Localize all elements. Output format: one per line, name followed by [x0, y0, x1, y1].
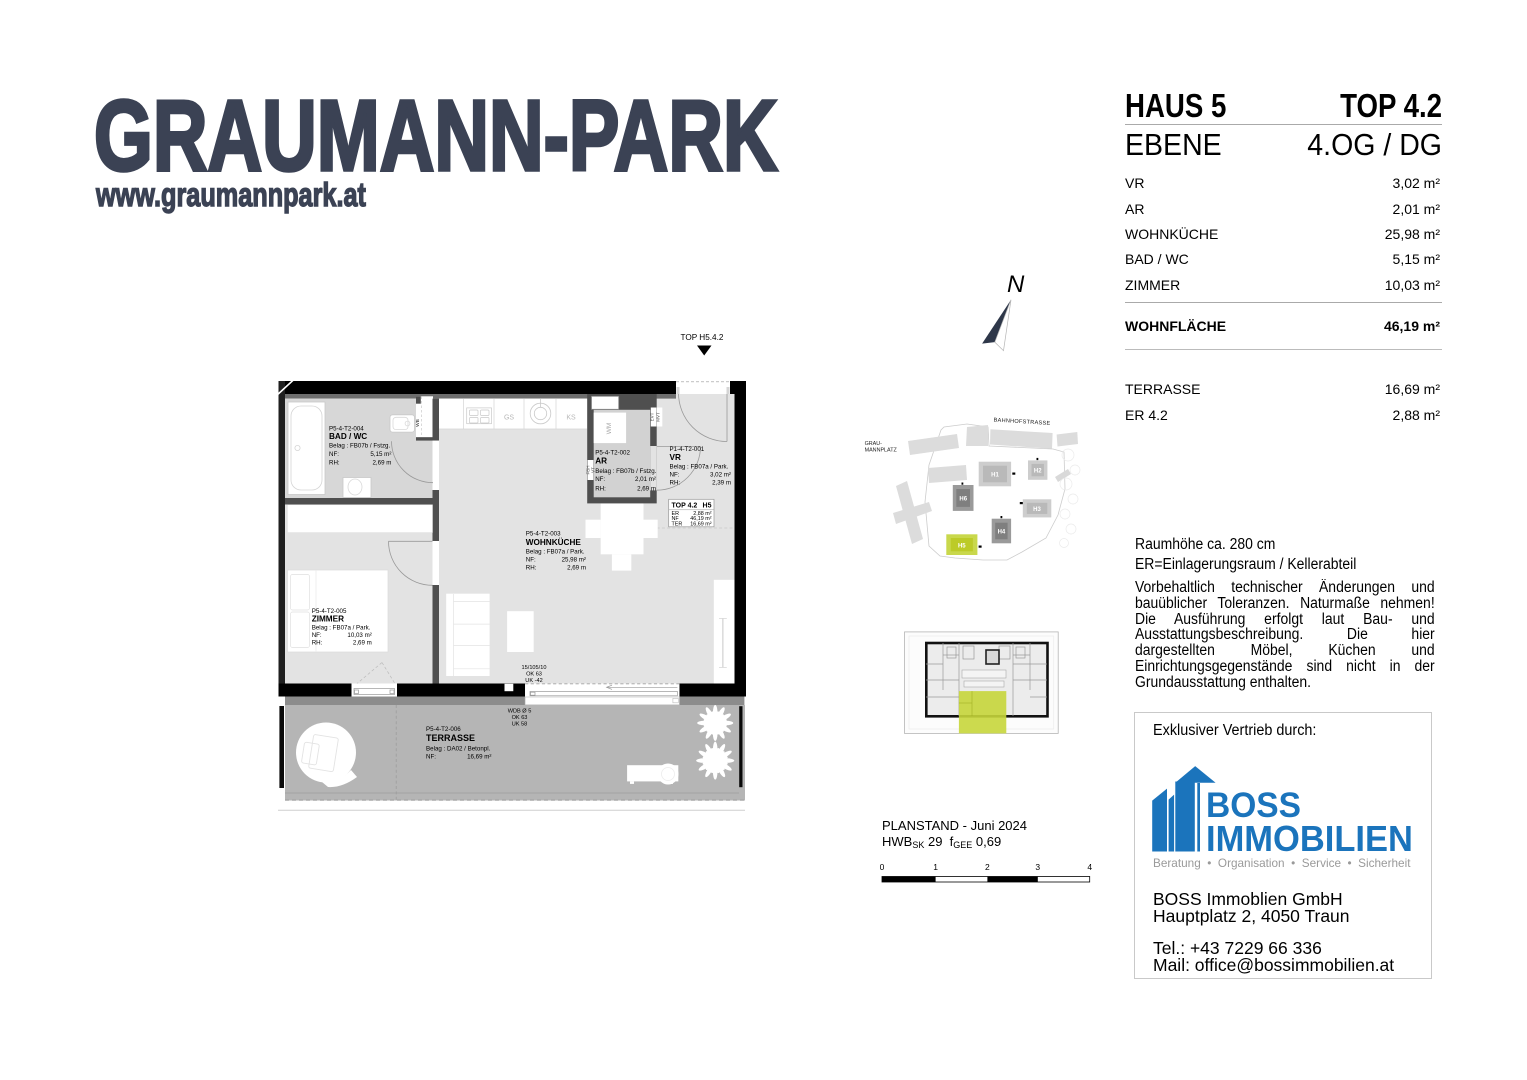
svg-text:OK 63: OK 63 — [512, 715, 528, 721]
svg-text:RH:: RH: — [329, 459, 340, 466]
svg-text:2,69 m: 2,69 m — [372, 459, 391, 466]
svg-text:NF:: NF: — [526, 557, 536, 564]
svg-text:15/105/10: 15/105/10 — [522, 665, 547, 671]
svg-text:1: 1 — [933, 862, 938, 872]
svg-text:TER: TER — [672, 522, 683, 528]
svg-text:Belag : FB07b / Fstzg.: Belag : FB07b / Fstzg. — [329, 442, 390, 449]
svg-text:Belag : FB07a / Park.: Belag : FB07a / Park. — [526, 549, 585, 556]
svg-text:ZIMMER: ZIMMER — [312, 614, 344, 623]
svg-text:16,69 m²: 16,69 m² — [690, 522, 711, 528]
svg-text:H5: H5 — [703, 502, 712, 509]
svg-text:P5-4-T2-003: P5-4-T2-003 — [526, 531, 561, 538]
svg-text:H4: H4 — [998, 530, 1006, 536]
svg-text:WM: WM — [606, 423, 613, 435]
svg-text:H1: H1 — [991, 472, 999, 478]
svg-text:BAHNHOFSTRASSE: BAHNHOFSTRASSE — [993, 418, 1050, 427]
svg-text:Belag : FB07b / Fstzg.: Belag : FB07b / Fstzg. — [595, 468, 656, 475]
svg-text:2,39 m: 2,39 m — [712, 479, 731, 486]
svg-text:P5-4-T2-002: P5-4-T2-002 — [595, 449, 630, 456]
svg-text:2,01 m²: 2,01 m² — [635, 476, 656, 483]
svg-text:UK 58: UK 58 — [512, 722, 528, 728]
svg-text:Belag : DA02 / Betonpl.: Belag : DA02 / Betonpl. — [426, 746, 491, 753]
svg-text:BAD / WC: BAD / WC — [329, 432, 367, 441]
svg-text:RH:: RH: — [526, 565, 537, 572]
svg-text:Belag : FB07a / Park.: Belag : FB07a / Park. — [312, 625, 371, 632]
svg-text:H5: H5 — [958, 544, 966, 550]
svg-text:TERRASSE: TERRASSE — [426, 733, 475, 743]
svg-text:WOHNKÜCHE: WOHNKÜCHE — [526, 537, 582, 547]
svg-text:UK -42: UK -42 — [525, 678, 542, 684]
svg-text:10,03 m²: 10,03 m² — [347, 632, 371, 639]
svg-text:2,69 m: 2,69 m — [637, 485, 656, 492]
svg-text:5,15 m²: 5,15 m² — [370, 451, 391, 458]
svg-text:VR: VR — [670, 453, 681, 462]
svg-text:4: 4 — [1087, 862, 1092, 872]
svg-text:NF:: NF: — [595, 476, 605, 483]
svg-text:H6: H6 — [959, 496, 967, 502]
svg-text:WDB Ø 5: WDB Ø 5 — [508, 709, 532, 715]
svg-text:3: 3 — [1035, 862, 1040, 872]
svg-text:Belag : FB07a / Park.: Belag : FB07a / Park. — [670, 463, 729, 470]
svg-text:2,69 m: 2,69 m — [567, 565, 586, 572]
svg-text:TOP 4.2: TOP 4.2 — [672, 502, 698, 509]
svg-text:WB: WB — [415, 419, 421, 427]
svg-text:25,98 m²: 25,98 m² — [562, 557, 586, 564]
svg-text:NF:: NF: — [329, 451, 339, 458]
svg-text:AR: AR — [595, 457, 607, 466]
svg-text:P5-4-T2-006: P5-4-T2-006 — [426, 726, 461, 733]
svg-text:VT: VT — [591, 467, 596, 473]
svg-text:GRAU-: GRAU- — [865, 441, 883, 447]
svg-text:RH:: RH: — [312, 640, 323, 647]
svg-text:EVT: EVT — [650, 412, 655, 421]
svg-text:KS: KS — [566, 415, 576, 422]
svg-text:H2: H2 — [1034, 468, 1042, 474]
svg-text:NF:: NF: — [426, 754, 436, 761]
svg-text:RH:: RH: — [595, 485, 606, 492]
svg-text:2: 2 — [985, 862, 990, 872]
svg-text:16,69 m²: 16,69 m² — [467, 754, 491, 761]
svg-text:3,02 m²: 3,02 m² — [710, 471, 731, 478]
svg-text:OK 63: OK 63 — [526, 672, 542, 678]
svg-text:NF:: NF: — [312, 632, 322, 639]
svg-text:RH:: RH: — [670, 479, 681, 486]
svg-text:0: 0 — [880, 862, 885, 872]
svg-text:N: N — [1007, 271, 1025, 298]
svg-text:MANNPLATZ: MANNPLATZ — [865, 448, 898, 454]
svg-text:NF:: NF: — [670, 471, 680, 478]
svg-text:TOP H5.4.2: TOP H5.4.2 — [681, 333, 724, 342]
svg-text:2,69 m: 2,69 m — [353, 640, 372, 647]
svg-text:GS: GS — [504, 415, 514, 422]
svg-text:MVT: MVT — [656, 412, 661, 422]
svg-text:H3: H3 — [1033, 507, 1041, 513]
